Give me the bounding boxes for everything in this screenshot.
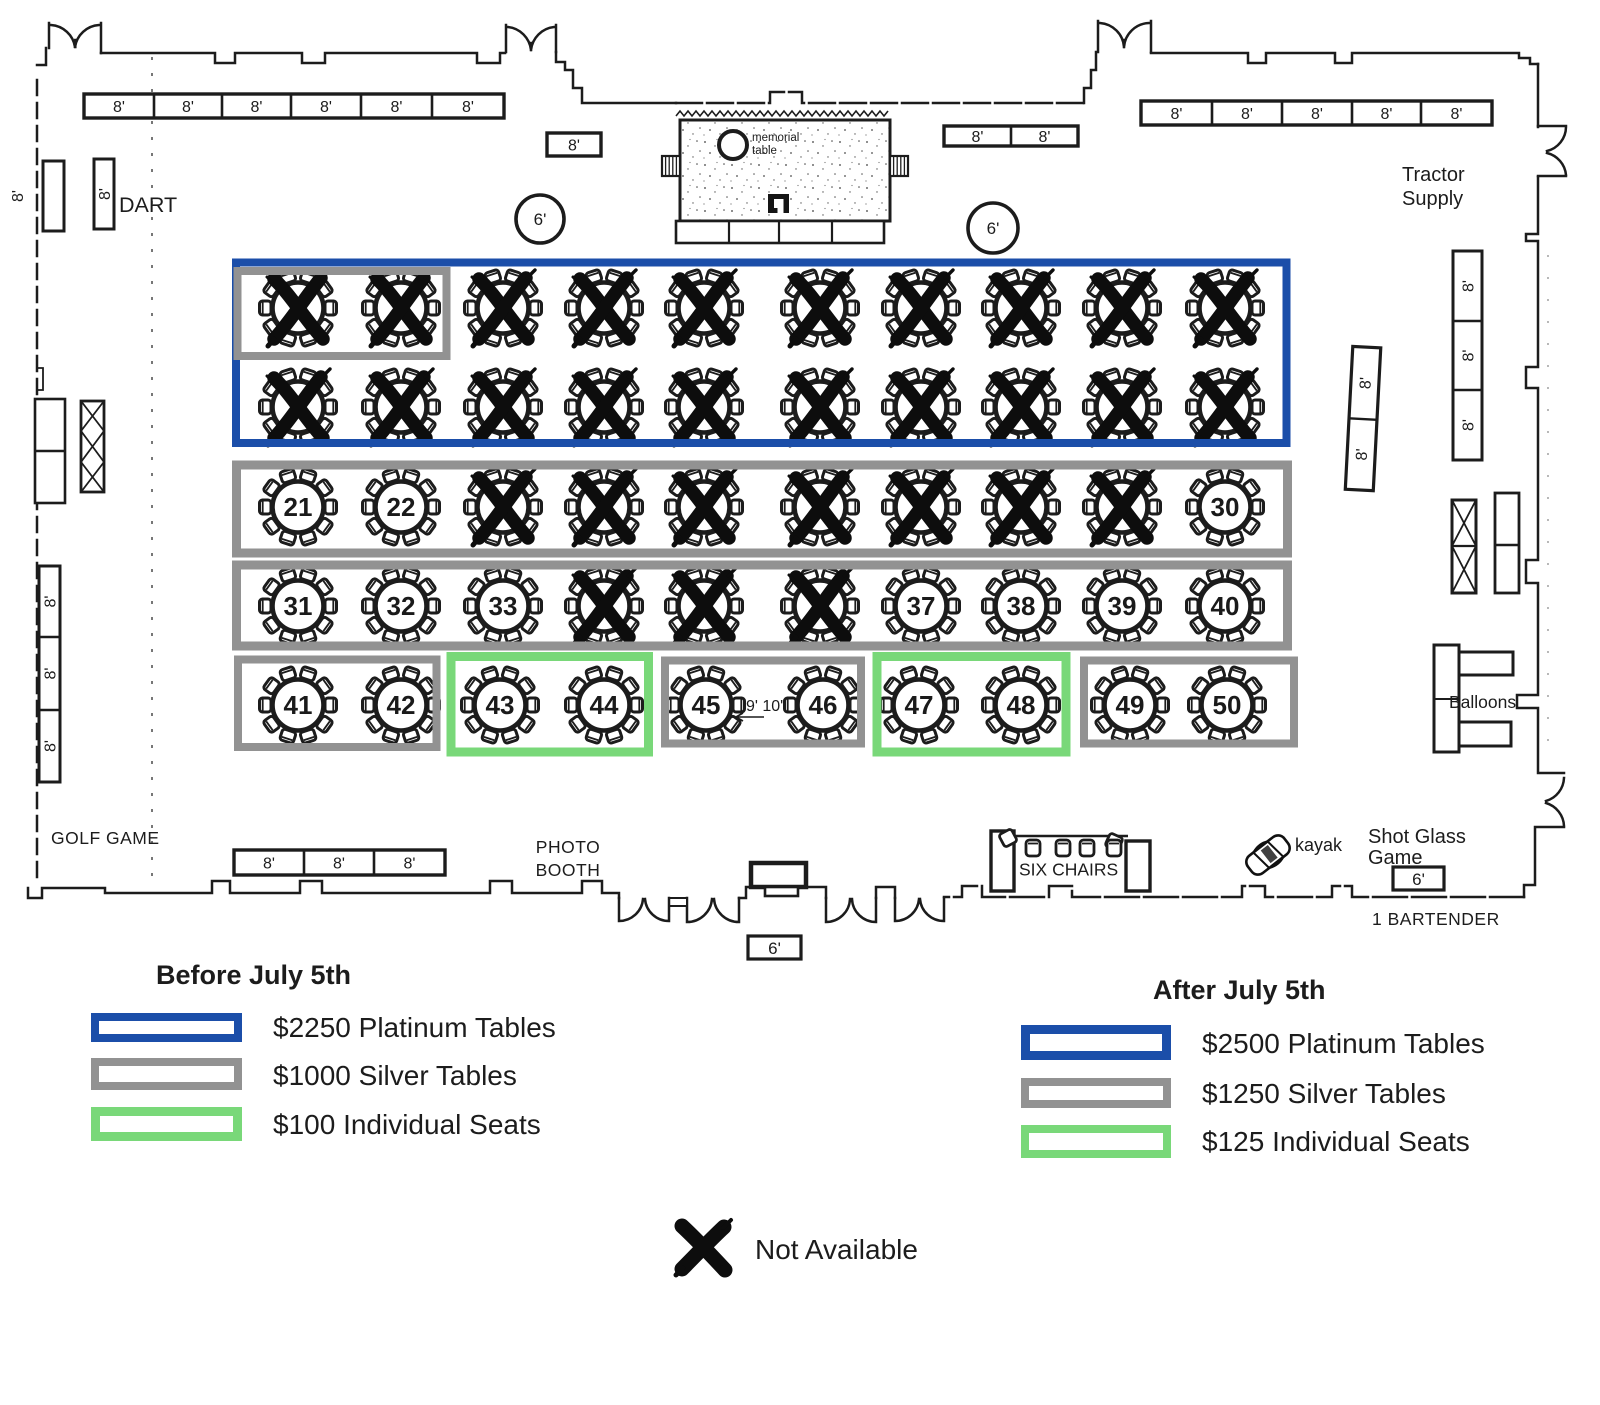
- svg-text:8': 8': [1171, 106, 1183, 123]
- svg-text:8': 8': [1039, 129, 1051, 146]
- svg-text:8': 8': [42, 668, 59, 680]
- svg-text:Before July 5th: Before July 5th: [156, 960, 351, 990]
- svg-text:1 BARTENDER: 1 BARTENDER: [1372, 909, 1500, 929]
- svg-text:Shot Glass: Shot Glass: [1368, 826, 1466, 848]
- svg-text:9' 10": 9' 10": [746, 698, 786, 715]
- svg-text:44: 44: [590, 690, 619, 720]
- svg-text:45: 45: [692, 690, 721, 720]
- svg-text:GOLF GAME: GOLF GAME: [51, 828, 160, 848]
- svg-text:42: 42: [387, 690, 416, 720]
- svg-text:30: 30: [1211, 492, 1240, 522]
- svg-text:8': 8': [10, 190, 27, 202]
- svg-text:39: 39: [1108, 591, 1137, 621]
- svg-text:8': 8': [1460, 350, 1477, 362]
- svg-text:8': 8': [404, 855, 416, 872]
- svg-text:6': 6': [534, 210, 547, 229]
- svg-text:8': 8': [391, 99, 403, 116]
- svg-text:Supply: Supply: [1402, 188, 1463, 210]
- svg-text:8': 8': [182, 99, 194, 116]
- svg-text:8': 8': [1451, 106, 1463, 123]
- svg-text:21: 21: [284, 492, 313, 522]
- svg-text:8': 8': [462, 99, 474, 116]
- svg-text:8': 8': [320, 99, 332, 116]
- svg-text:43: 43: [486, 690, 515, 720]
- svg-text:PHOTO: PHOTO: [536, 837, 600, 857]
- svg-text:8': 8': [1357, 377, 1375, 390]
- svg-text:8': 8': [333, 855, 345, 872]
- svg-text:8': 8': [251, 99, 263, 116]
- svg-text:8': 8': [113, 99, 125, 116]
- svg-text:8': 8': [1241, 106, 1253, 123]
- svg-text:$2250 Platinum Tables: $2250 Platinum Tables: [273, 1012, 556, 1043]
- svg-text:37: 37: [907, 591, 936, 621]
- svg-text:8': 8': [1381, 106, 1393, 123]
- svg-text:Tractor: Tractor: [1402, 164, 1465, 186]
- svg-text:Not Available: Not Available: [755, 1234, 918, 1265]
- svg-text:$1250 Silver Tables: $1250 Silver Tables: [1202, 1078, 1446, 1109]
- svg-text:46: 46: [809, 690, 838, 720]
- svg-text:8': 8': [263, 855, 275, 872]
- svg-text:BOOTH: BOOTH: [536, 860, 601, 880]
- svg-text:33: 33: [489, 591, 518, 621]
- svg-text:6': 6': [987, 219, 1000, 238]
- svg-text:8': 8': [42, 740, 59, 752]
- svg-text:$125 Individual Seats: $125 Individual Seats: [1202, 1126, 1470, 1157]
- svg-text:DART: DART: [119, 193, 177, 217]
- svg-text:6': 6': [768, 939, 781, 958]
- svg-text:Game: Game: [1368, 847, 1422, 869]
- svg-text:8': 8': [568, 137, 580, 154]
- svg-text:$1000 Silver Tables: $1000 Silver Tables: [273, 1060, 517, 1091]
- svg-text:50: 50: [1213, 690, 1242, 720]
- svg-text:48: 48: [1007, 690, 1036, 720]
- svg-text:After July 5th: After July 5th: [1153, 975, 1326, 1005]
- svg-text:$100 Individual Seats: $100 Individual Seats: [273, 1109, 541, 1140]
- svg-text:40: 40: [1211, 591, 1240, 621]
- svg-text:memorial: memorial: [752, 132, 799, 144]
- svg-text:41: 41: [284, 690, 313, 720]
- svg-text:8': 8': [1460, 280, 1477, 292]
- svg-text:32: 32: [387, 591, 416, 621]
- svg-text:6': 6': [1412, 870, 1425, 889]
- svg-text:$2500 Platinum Tables: $2500 Platinum Tables: [1202, 1028, 1485, 1059]
- svg-text:8': 8': [1460, 419, 1477, 431]
- svg-text:47: 47: [905, 690, 934, 720]
- svg-text:8': 8': [1311, 106, 1323, 123]
- svg-text:22: 22: [387, 492, 416, 522]
- svg-text:SIX CHAIRS: SIX CHAIRS: [1019, 860, 1118, 880]
- svg-text:8': 8': [97, 188, 114, 200]
- svg-text:31: 31: [284, 591, 313, 621]
- svg-text:38: 38: [1007, 591, 1036, 621]
- svg-text:8': 8': [1354, 448, 1372, 461]
- svg-text:Balloons: Balloons: [1449, 692, 1516, 712]
- svg-text:table: table: [752, 145, 777, 157]
- svg-text:8': 8': [42, 596, 59, 608]
- svg-text:kayak: kayak: [1295, 835, 1343, 855]
- svg-text:49: 49: [1116, 690, 1145, 720]
- svg-text:8': 8': [972, 129, 984, 146]
